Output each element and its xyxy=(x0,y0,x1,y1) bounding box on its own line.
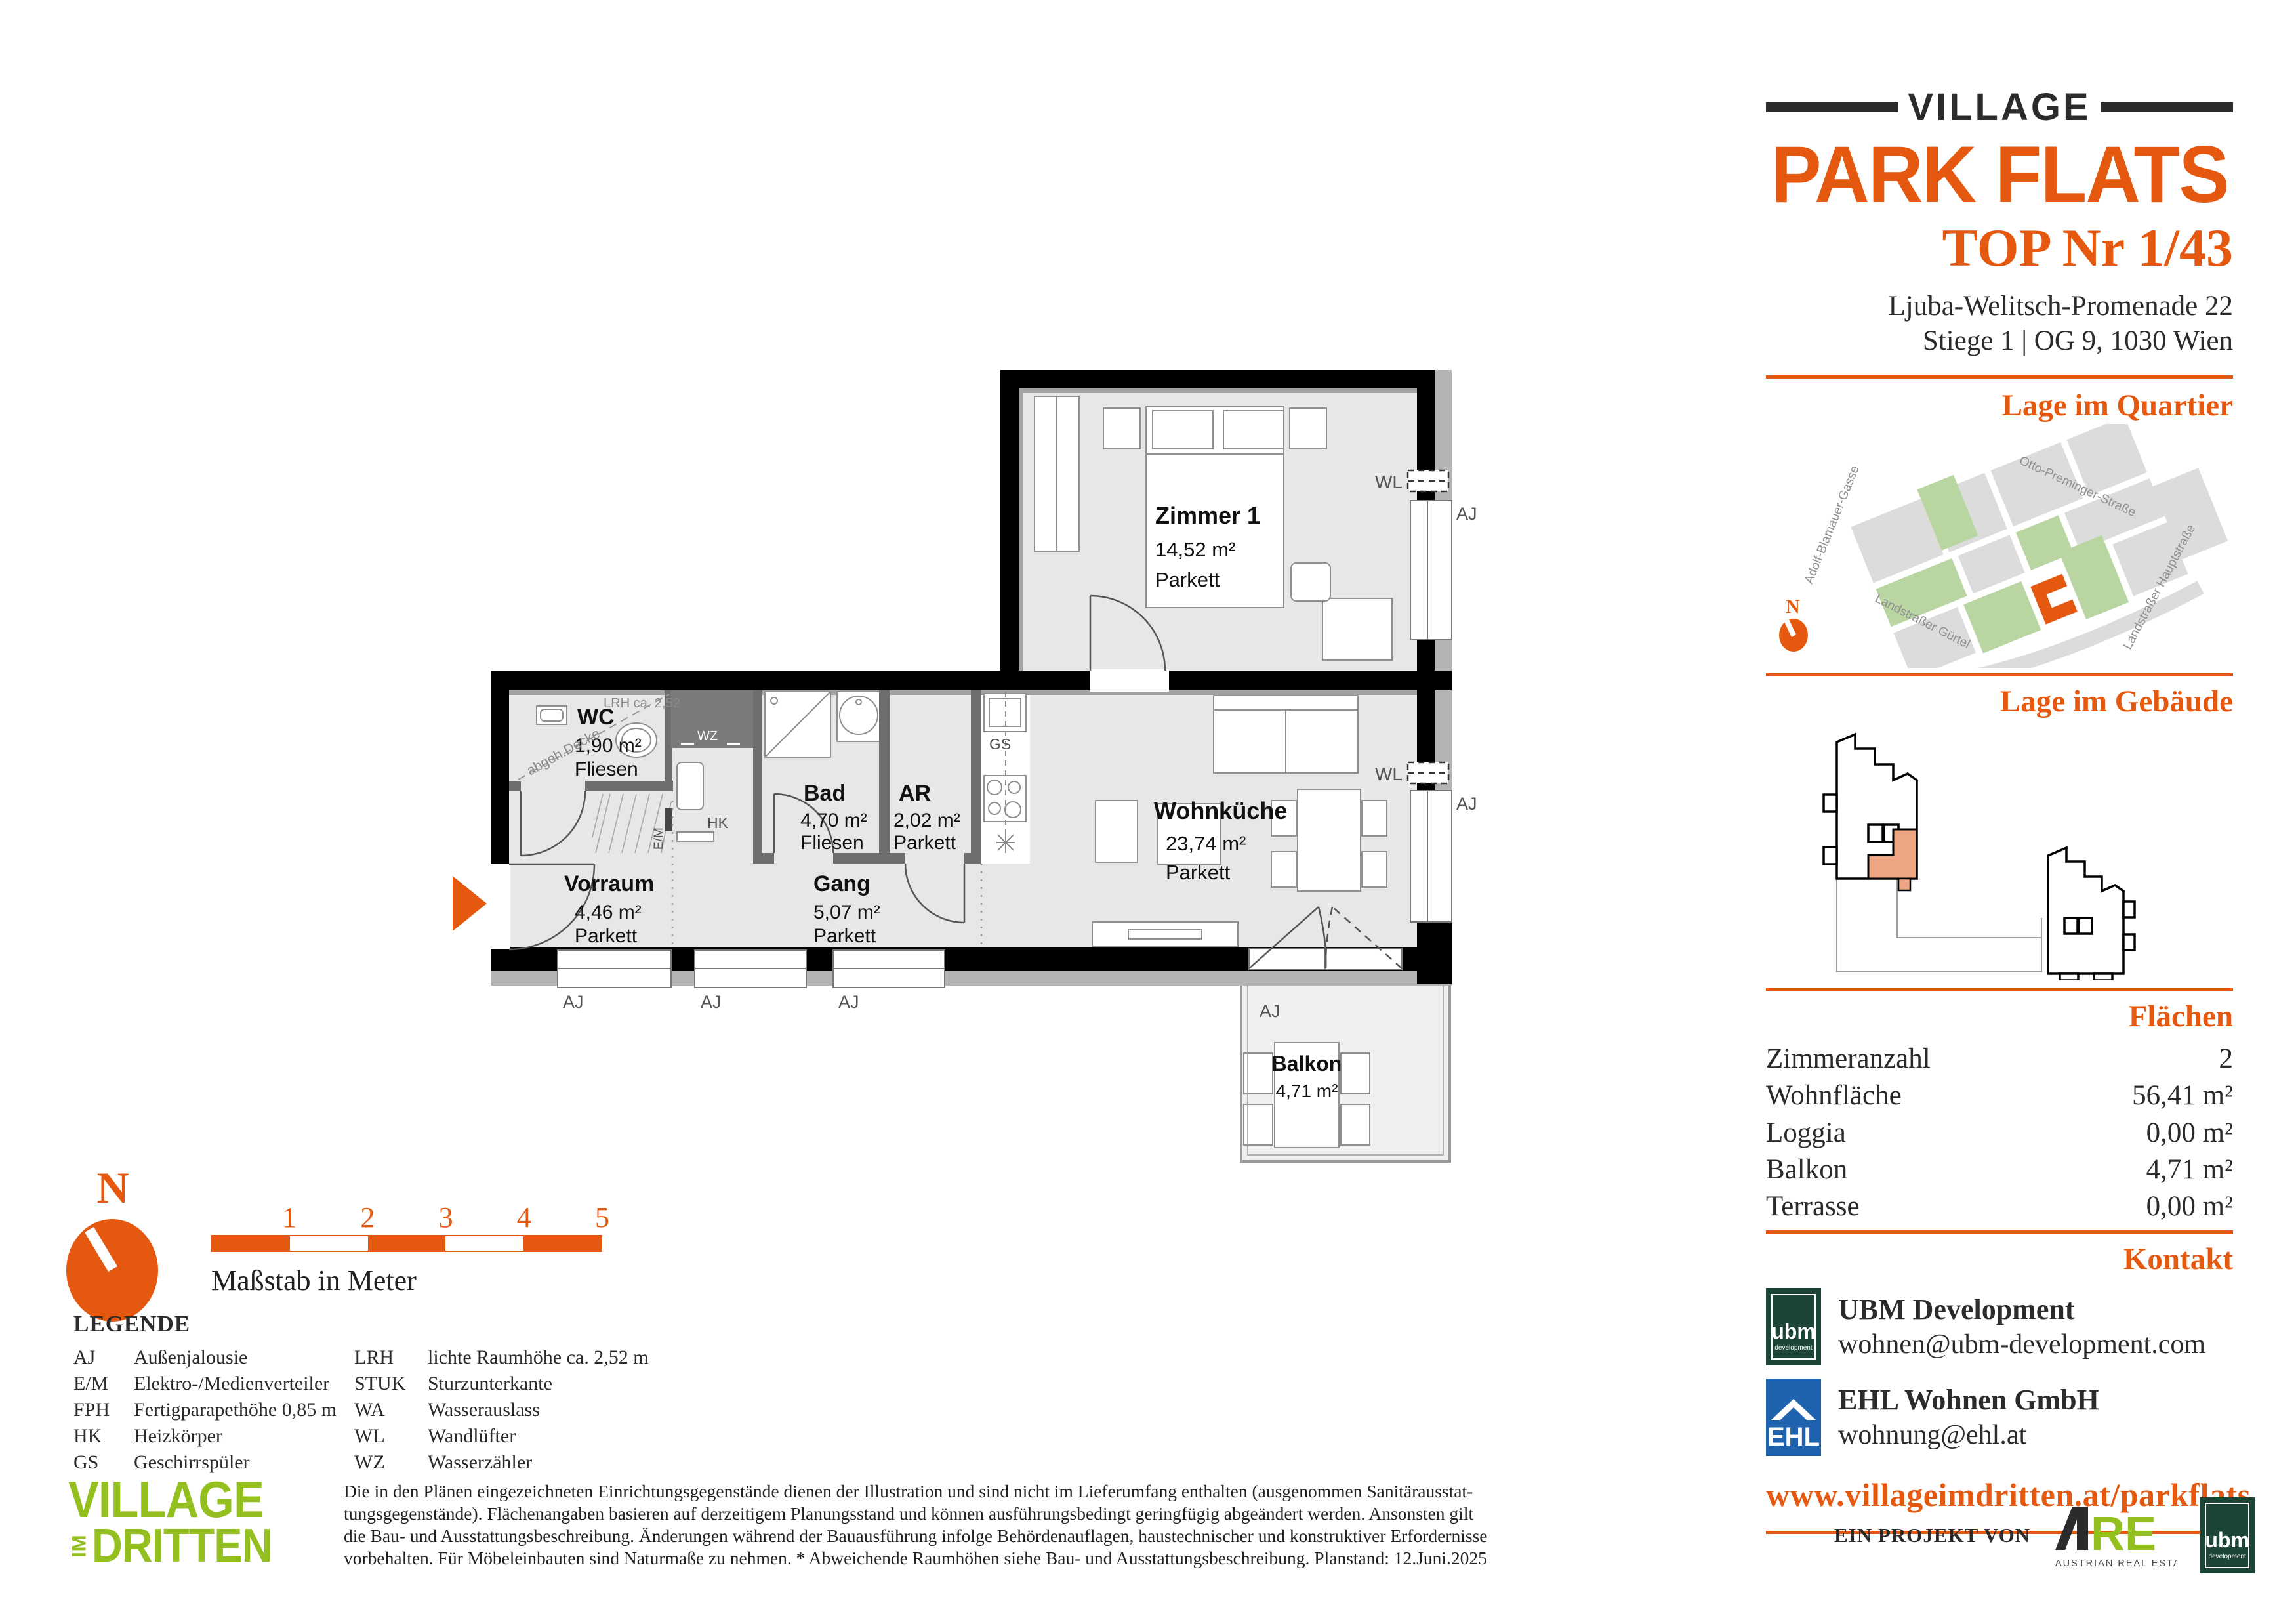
area-label: Wohnfläche xyxy=(1766,1081,1902,1110)
label-vorraum-area: 4,46 m² xyxy=(575,902,642,923)
are-logo-a-icon xyxy=(2055,1507,2088,1550)
area-value: 2 xyxy=(2219,1044,2234,1073)
label-ar-area: 2,02 m² xyxy=(893,810,960,831)
map-compass-n: N xyxy=(1786,596,1800,617)
brand-main-text: PARK FLATS xyxy=(1766,133,2233,215)
area-label: Terrasse xyxy=(1766,1192,1860,1221)
scale-segment xyxy=(213,1236,290,1251)
village-im-dritten-logo: VILLAGE IM DRITTEN xyxy=(68,1476,292,1569)
address-line2: Stiege 1 | OG 9, 1030 Wien xyxy=(1766,324,2233,358)
gs-label: GS xyxy=(989,736,1011,753)
legend-label: Elektro-/Medienverteiler xyxy=(134,1373,354,1394)
legend-abbr: STUK xyxy=(354,1373,428,1394)
label-balkon: Balkon xyxy=(1272,1052,1342,1075)
aj-label: AJ xyxy=(1260,1001,1281,1021)
aj-label: AJ xyxy=(1456,504,1477,524)
aj-label: AJ xyxy=(701,992,722,1012)
village-logo-line2: IM DRITTEN xyxy=(68,1524,292,1568)
datasheet-page: Zimmer 1 14,52 m² Parkett Wohnküche 23,7… xyxy=(0,0,2296,1624)
legend-label: Fertigparapethöhe 0,85 m xyxy=(134,1399,354,1421)
ehl-email[interactable]: wohnung@ehl.at xyxy=(1838,1418,2099,1453)
unit-number: TOP Nr 1/43 xyxy=(1766,221,2233,275)
ehl-logo-word: EHL xyxy=(1767,1424,1820,1450)
building-tower-right xyxy=(2048,848,2135,980)
scale-tick: 4 xyxy=(517,1201,531,1234)
address-line1: Ljuba-Welitsch-Promenade 22 xyxy=(1766,289,2233,323)
legend-label: Wasserauslass xyxy=(428,1399,649,1421)
label-gang-floor: Parkett xyxy=(813,925,876,947)
divider xyxy=(1766,673,2233,676)
scale-segment xyxy=(445,1236,523,1251)
label-zimmer1-area: 14,52 m² xyxy=(1155,538,1235,561)
quartier-map: Adolf-Blamauer-Gasse Otto-Preminger-Stra… xyxy=(1766,424,2233,668)
divider xyxy=(1766,1230,2233,1234)
scale-caption: Maßstab in Meter xyxy=(211,1264,602,1297)
info-panel: VILLAGE PARK FLATS TOP Nr 1/43 Ljuba-Wel… xyxy=(1766,85,2233,1534)
label-vorraum-floor: Parkett xyxy=(575,925,638,947)
label-bad-area: 4,70 m² xyxy=(800,810,867,831)
label-gang-area: 5,07 m² xyxy=(813,902,880,923)
aj-label: AJ xyxy=(1456,794,1477,814)
ubm-footer-logo: ubm development xyxy=(2200,1497,2255,1573)
section-kontakt: Kontakt xyxy=(1766,1244,2233,1275)
label-bad: Bad xyxy=(804,781,846,806)
legend-abbr: LRH xyxy=(354,1346,428,1368)
wz-label: WZ xyxy=(697,729,718,743)
north-compass: N xyxy=(62,1165,164,1326)
areas-table: Zimmeranzahl 2 Wohnfläche 56,41 m² Loggi… xyxy=(1766,1044,2233,1221)
legend-abbr: WA xyxy=(354,1399,428,1421)
building-unit-balcony xyxy=(1898,879,1910,890)
divider xyxy=(1766,988,2233,991)
wl-label: WL xyxy=(1375,472,1403,492)
ubm-logo: ubm development xyxy=(1766,1288,1821,1365)
compass-n-label: N xyxy=(62,1165,164,1210)
area-value: 56,41 m² xyxy=(2132,1081,2233,1110)
village-logo-dritten: DRITTEN xyxy=(92,1524,272,1568)
ubm-logo-word: ubm xyxy=(1771,1321,1816,1342)
scale-bar-graphic xyxy=(211,1235,602,1252)
area-label: Loggia xyxy=(1766,1118,1846,1148)
label-gang: Gang xyxy=(813,871,871,896)
are-logo: RE AUSTRIAN REAL ESTATE xyxy=(2053,1501,2177,1570)
disclaimer-line: tungsgegenstände). Flächenangaben basier… xyxy=(344,1503,1487,1525)
scale-tick: 3 xyxy=(439,1201,453,1234)
scale-segment xyxy=(368,1236,445,1251)
scale-ticks: 1 2 3 4 5 xyxy=(211,1201,602,1235)
section-quartier: Lage im Quartier xyxy=(1766,390,2233,421)
label-bad-floor: Fliesen xyxy=(800,832,864,854)
disclaimer-line: die Bau- und Ausstattungsbeschreibung. Ä… xyxy=(344,1525,1487,1547)
legend-abbr: AJ xyxy=(73,1346,134,1368)
legend-grid: AJ Außenjalousie LRH lichte Raumhöhe ca.… xyxy=(73,1346,649,1473)
lrh-label: LRH ca. 2,52 xyxy=(604,696,680,711)
scale-tick: 5 xyxy=(595,1201,609,1234)
legend-abbr: FPH xyxy=(73,1399,134,1421)
ubm-footer-word: ubm xyxy=(2205,1530,2249,1551)
table-row: Wohnfläche 56,41 m² xyxy=(1766,1081,2233,1110)
area-value: 4,71 m² xyxy=(2146,1155,2233,1184)
are-logo-re: RE xyxy=(2091,1508,2156,1560)
disclaimer-line: Die in den Plänen eingezeichneten Einric… xyxy=(344,1480,1487,1503)
village-logo-im: IM xyxy=(68,1535,92,1557)
gebaeude-diagram xyxy=(1766,721,2233,980)
area-label: Balkon xyxy=(1766,1155,1847,1184)
divider xyxy=(1766,375,2233,379)
are-logo-subtitle: AUSTRIAN REAL ESTATE xyxy=(2055,1558,2177,1569)
label-wohnkueche: Wohnküche xyxy=(1154,797,1287,824)
table-row: Zimmeranzahl 2 xyxy=(1766,1044,2233,1073)
brand-bar-right xyxy=(2101,102,2233,112)
ehl-logo: EHL xyxy=(1766,1379,1821,1456)
area-value: 0,00 m² xyxy=(2146,1192,2233,1221)
scale-bar: 1 2 3 4 5 Maßstab in Meter xyxy=(211,1201,602,1297)
brand-logo: VILLAGE xyxy=(1766,85,2233,129)
brand-top-text: VILLAGE xyxy=(1908,85,2091,129)
legend-label: Wasserzähler xyxy=(428,1451,649,1473)
project-credits: EIN PROJEKT VON RE AUSTRIAN REAL ESTATE … xyxy=(1834,1497,2267,1573)
label-zimmer1: Zimmer 1 xyxy=(1155,502,1260,529)
legend-abbr: HK xyxy=(73,1425,134,1447)
label-ar-floor: Parkett xyxy=(893,832,956,854)
table-row: Loggia 0,00 m² xyxy=(1766,1118,2233,1148)
map-building-marker xyxy=(2030,574,2077,625)
wl-label: WL xyxy=(1375,764,1403,784)
ubm-logo-sub: development xyxy=(1774,1344,1812,1352)
legend: LEGENDE AJ Außenjalousie LRH lichte Raum… xyxy=(73,1311,649,1473)
village-logo-im-text: IM xyxy=(69,1535,91,1558)
scale-segment xyxy=(290,1236,367,1251)
compass-icon xyxy=(65,1215,161,1323)
legend-abbr: WZ xyxy=(354,1451,428,1473)
label-balkon-area: 4,71 m² xyxy=(1276,1081,1338,1101)
legend-label: Außenjalousie xyxy=(134,1346,354,1368)
ubm-footer-sub: development xyxy=(2209,1553,2246,1560)
aj-label: AJ xyxy=(838,992,859,1012)
scale-tick: 2 xyxy=(360,1201,375,1234)
hk-label: HK xyxy=(707,814,729,831)
legend-title: LEGENDE xyxy=(73,1311,649,1337)
section-flaechen: Flächen xyxy=(1766,1001,2233,1032)
ehl-name: EHL Wohnen GmbH xyxy=(1838,1382,2099,1418)
legend-abbr: E/M xyxy=(73,1373,134,1394)
entry-arrow-icon xyxy=(453,876,487,931)
disclaimer: Die in den Plänen eingezeichneten Einric… xyxy=(344,1480,1487,1570)
legend-label: Wandlüfter xyxy=(428,1425,649,1447)
ehl-house-icon xyxy=(1766,1385,1821,1423)
building-base-outline xyxy=(1837,879,2041,972)
project-prefix: EIN PROJEKT VON xyxy=(1834,1524,2030,1547)
address: Ljuba-Welitsch-Promenade 22 Stiege 1 | O… xyxy=(1766,289,2233,358)
floor-plan: Zimmer 1 14,52 m² Parkett Wohnküche 23,7… xyxy=(446,341,1509,1194)
scale-segment xyxy=(523,1236,601,1251)
legend-abbr: WL xyxy=(354,1425,428,1447)
area-label: Zimmeranzahl xyxy=(1766,1044,1931,1073)
kontakt-ubm: ubm development UBM Development wohnen@u… xyxy=(1766,1288,2233,1365)
street-label: Adolf-Blamauer-Gasse xyxy=(1802,464,1862,586)
section-gebaeude: Lage im Gebäude xyxy=(1766,686,2233,717)
legend-label: Sturzunterkante xyxy=(428,1373,649,1394)
legend-label: Heizkörper xyxy=(134,1425,354,1447)
aj-label: AJ xyxy=(563,992,584,1012)
village-logo-line1: VILLAGE xyxy=(68,1476,270,1522)
table-row: Terrasse 0,00 m² xyxy=(1766,1192,2233,1221)
brand-bar-left xyxy=(1766,102,1898,112)
disclaimer-line: vorbehalten. Für Möbeleinbauten sind Nat… xyxy=(344,1547,1487,1570)
em-label: E/M xyxy=(652,827,666,850)
area-value: 0,00 m² xyxy=(2146,1118,2233,1148)
label-vorraum: Vorraum xyxy=(564,871,654,896)
ubm-email[interactable]: wohnen@ubm-development.com xyxy=(1838,1327,2205,1362)
map-compass: N xyxy=(1779,596,1808,652)
label-wc-floor: Fliesen xyxy=(575,759,638,780)
kontakt-ehl: EHL EHL Wohnen GmbH wohnung@ehl.at xyxy=(1766,1379,2233,1456)
label-zimmer1-floor: Parkett xyxy=(1155,568,1220,591)
label-ar: AR xyxy=(899,781,931,806)
ubm-name: UBM Development xyxy=(1838,1291,2205,1327)
ubm-footer-logo-inner: ubm development xyxy=(2205,1503,2249,1568)
ubm-logo-inner: ubm development xyxy=(1771,1294,1816,1360)
scale-tick: 1 xyxy=(282,1201,297,1234)
legend-label: lichte Raumhöhe ca. 2,52 m xyxy=(428,1346,649,1368)
label-wohnkueche-area: 23,74 m² xyxy=(1166,832,1246,855)
label-wohnkueche-floor: Parkett xyxy=(1166,861,1231,884)
table-row: Balkon 4,71 m² xyxy=(1766,1155,2233,1184)
